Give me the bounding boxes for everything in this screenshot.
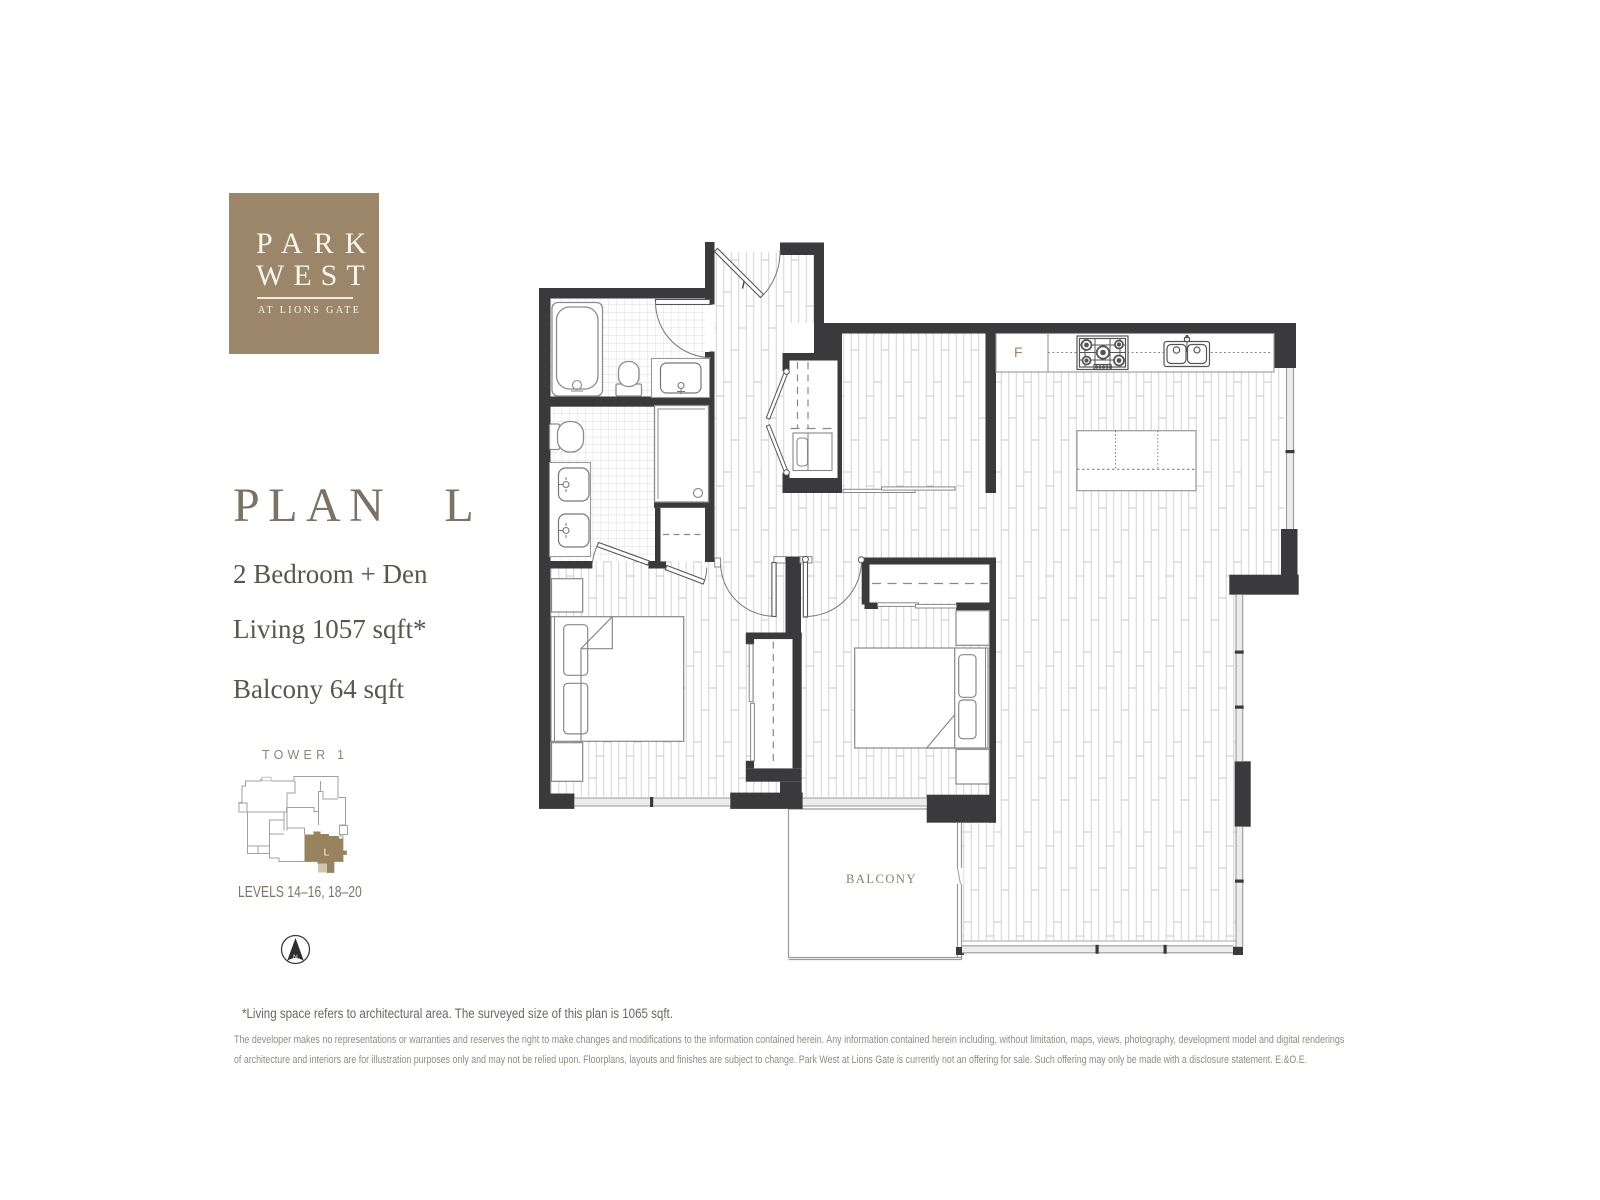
svg-text:N: N: [293, 954, 298, 961]
svg-text:L: L: [324, 847, 330, 859]
